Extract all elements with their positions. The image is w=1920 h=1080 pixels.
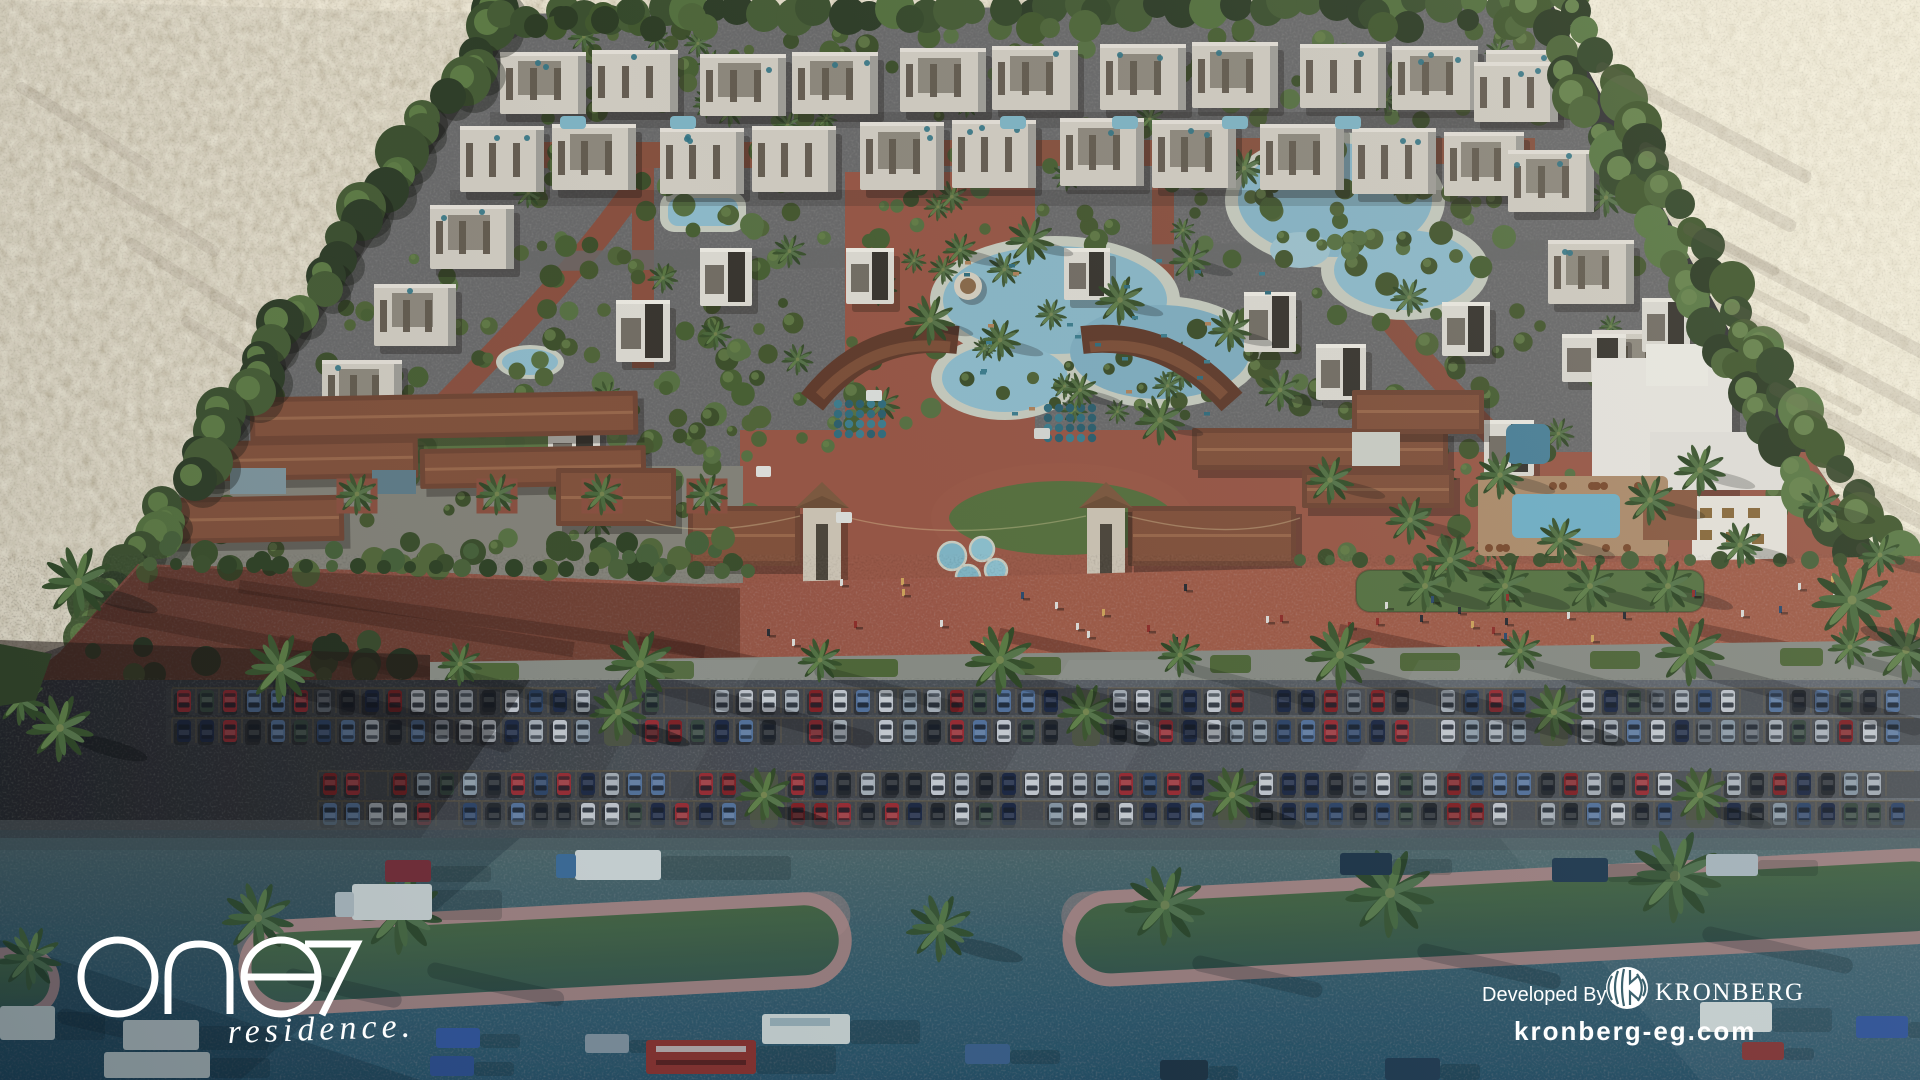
svg-text:KRONBERG: KRONBERG <box>1655 979 1805 1006</box>
svg-text:kronberg-eg.com: kronberg-eg.com <box>1514 1016 1756 1046</box>
svg-text:Developed By: Developed By <box>1482 984 1607 1006</box>
svg-text:residence.: residence. <box>227 1007 416 1051</box>
